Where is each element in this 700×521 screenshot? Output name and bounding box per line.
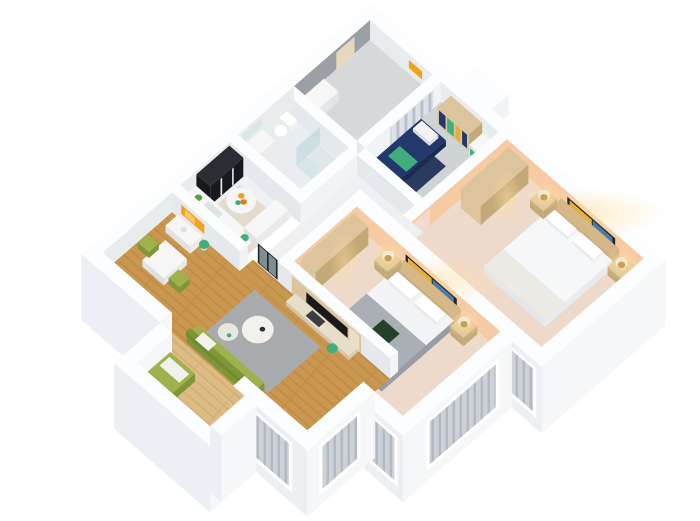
apartment-3d-floorplan-render [0, 0, 700, 521]
floorplan-canvas [0, 0, 700, 521]
